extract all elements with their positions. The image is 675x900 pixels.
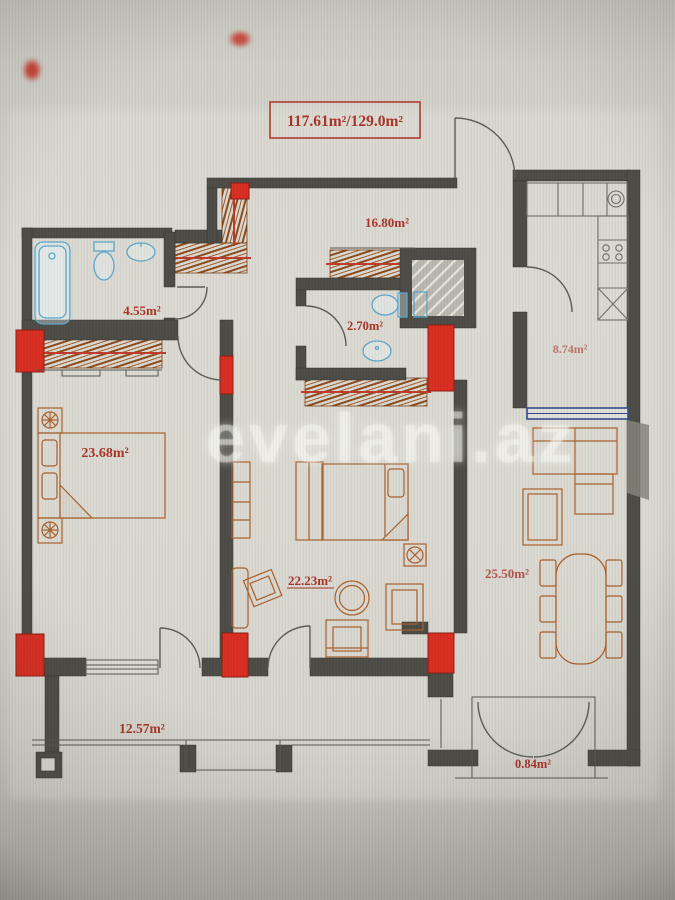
balcony-post-inner [41, 758, 55, 771]
pillow-2 [42, 473, 57, 499]
blanket-fold-2 [382, 514, 408, 540]
wall-wc-top [296, 278, 404, 290]
kitchen-sink [608, 191, 624, 207]
stool [243, 569, 281, 606]
room-label-bedroom: 23.68m² [81, 446, 128, 461]
kitchen-door [527, 267, 572, 312]
sofa-corner [575, 474, 613, 514]
dining-chair [606, 596, 622, 622]
bathroom-door [175, 287, 207, 319]
blanket-fold [60, 485, 92, 518]
room-label-bathroom: 4.55m² [123, 303, 161, 318]
balcony-post-1 [180, 745, 196, 772]
wall-bottom-1 [428, 750, 478, 766]
living-furniture [232, 462, 426, 657]
wall-balcony-left [45, 676, 59, 752]
room-label-hall: 16.80m² [365, 215, 409, 230]
wall-left-outer [22, 228, 32, 638]
room-label-living: 22.23m² [288, 573, 332, 588]
wall-top-right [513, 170, 630, 181]
pillow-1 [42, 440, 57, 466]
dining-chair [540, 632, 556, 658]
bedroom-window [86, 660, 158, 674]
room-label-kitchen: 8.74m² [553, 342, 588, 356]
wall-wc-bottom [296, 368, 406, 380]
wall-bath-top [22, 228, 172, 238]
column-top [231, 183, 249, 199]
wall-kitchen-left-upper [513, 181, 527, 267]
bedroom-furniture [38, 408, 165, 543]
bedroom-door [178, 336, 222, 380]
french-doors [478, 702, 589, 757]
coffee-table [523, 489, 562, 545]
toilet [94, 252, 114, 280]
wall-below-red [428, 673, 453, 697]
column-left-mid [16, 330, 44, 372]
column-central-bottom [222, 633, 248, 677]
dining-chair [606, 560, 622, 586]
watermark: evelani.az [206, 398, 675, 478]
balcony-bay [186, 740, 280, 770]
room-label-french-balcony: 0.84m² [515, 757, 551, 771]
side-shelf [232, 568, 248, 628]
room-labels: 16.80m² 4.55m² 2.70m² 8.74m² 23.68m² 22.… [81, 215, 587, 771]
wardrobe-tab-1 [62, 370, 100, 376]
photo-artifact-red-1 [22, 58, 42, 82]
floor-plan-photo: 117.61m²/129.0m² 16.80m² 4.55m² 2.70m² 8… [0, 0, 675, 900]
dining-chair [540, 560, 556, 586]
wall-bottom-2 [588, 750, 640, 766]
photo-artifact-red-2 [228, 30, 252, 48]
wall-central-upper [207, 188, 217, 243]
wall-bath-right-upper [164, 232, 175, 287]
total-area-label: 117.61m²/129.0m² [287, 113, 403, 130]
wall-balcony-3 [310, 658, 430, 676]
wall-wc-left-upper [296, 290, 306, 306]
bedroom-balcony-door [160, 628, 200, 668]
room-label-lounge: 25.50m² [485, 566, 529, 581]
column-shaft [428, 325, 454, 391]
column-left-bottom [16, 634, 44, 676]
total-area-box: 117.61m²/129.0m² [270, 102, 420, 138]
shaft-hatch [412, 260, 464, 316]
stove-burner [603, 245, 609, 251]
wc-door [306, 306, 346, 346]
wc-toilet [372, 295, 398, 315]
dining-chair [540, 596, 556, 622]
column-central-mid [220, 356, 233, 394]
dining-table [556, 554, 606, 664]
column-right-bottom [428, 633, 454, 673]
kitchen-units [527, 183, 628, 320]
entrance-door [455, 118, 515, 178]
toilet-tank [94, 242, 114, 251]
balcony-post-2 [276, 745, 292, 772]
wardrobe-tab-2 [126, 370, 158, 376]
dining-chair [606, 632, 622, 658]
wc-toilet-tank [398, 293, 407, 317]
wc-sink [363, 341, 391, 361]
living-balcony-door [268, 626, 310, 668]
room-label-balcony: 12.57m² [119, 721, 165, 736]
wall-kitchen-left-lower [513, 312, 527, 408]
room-label-wc: 2.70m² [347, 319, 383, 333]
